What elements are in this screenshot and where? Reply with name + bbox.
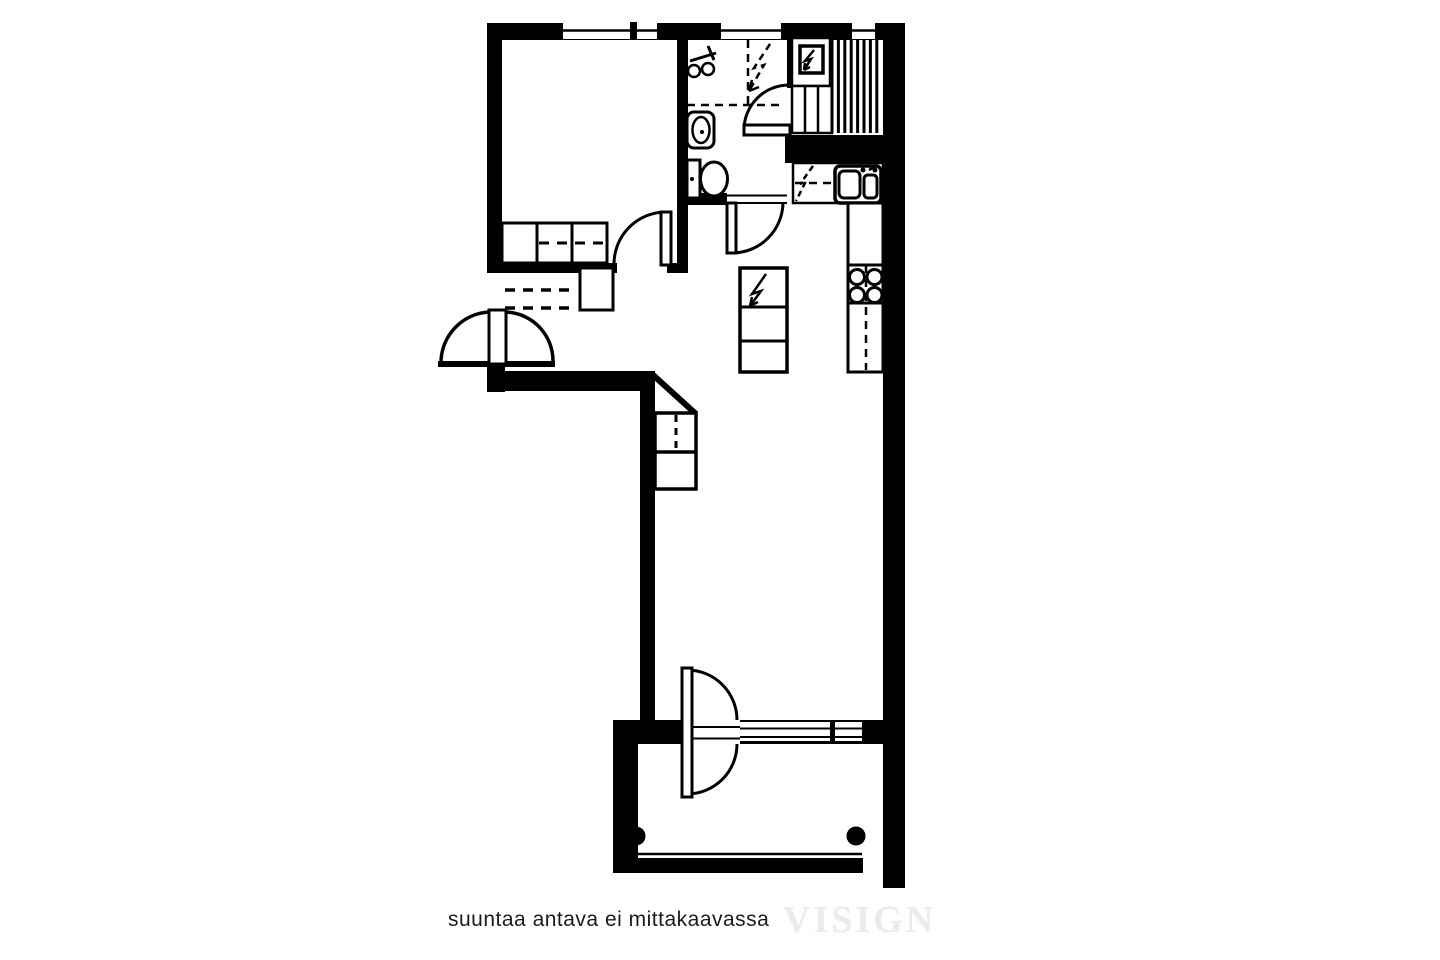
wall-bedroom-east	[677, 40, 688, 273]
wall-right	[883, 23, 905, 888]
washbasin-icon	[687, 112, 714, 148]
wall-hall-south	[487, 371, 655, 391]
sauna-fixtures	[792, 38, 877, 133]
bathroom-door	[727, 194, 787, 253]
floorplan-page: suuntaa antava ei mittakaavassa VISIGN	[0, 0, 1440, 960]
living-room-fixtures	[655, 413, 696, 489]
sauna-benches-icon	[832, 40, 877, 133]
window-bathroom	[721, 22, 781, 39]
balcony-post-icon	[627, 827, 646, 846]
window-sauna	[852, 22, 875, 39]
sauna-door	[744, 85, 790, 135]
hall-cabinet-icon	[580, 268, 613, 310]
floorplan-drawing	[0, 0, 1440, 960]
shower-mixer-icon	[688, 46, 716, 77]
bedroom-fixtures	[502, 223, 607, 263]
wall-balcony-west	[613, 744, 638, 873]
wall-left	[487, 23, 502, 273]
window-bedroom	[563, 22, 657, 39]
window-living-large	[740, 722, 830, 741]
balcony-post-icon	[847, 827, 866, 846]
sauna-heater-icon	[800, 46, 823, 73]
wall-top	[487, 23, 905, 40]
hall-fixtures	[505, 268, 613, 310]
sauna-bench-steps-icon	[792, 86, 832, 133]
disclaimer-text: suuntaa antava ei mittakaavassa	[448, 908, 769, 932]
balcony	[627, 827, 866, 855]
entrance-door	[438, 310, 555, 367]
wall-balcony-south	[613, 858, 863, 873]
wall-living-west	[640, 371, 655, 744]
living-room-cabinet-icon	[655, 413, 696, 489]
window-living-small	[835, 722, 862, 741]
bedroom-door	[614, 212, 671, 274]
bathroom-fixtures	[687, 40, 785, 198]
kitchen-sink-icon	[835, 165, 881, 203]
balcony-door	[682, 668, 740, 797]
watermark-text: VISIGN	[783, 898, 936, 942]
wardrobe-icon	[502, 223, 607, 263]
toilet-icon	[687, 160, 728, 198]
fridge-freezer-icon	[740, 268, 787, 372]
wall-corner-diagonal	[652, 374, 696, 414]
wall-below-sauna	[785, 135, 883, 163]
hall-closet-rail-icon	[505, 290, 577, 308]
